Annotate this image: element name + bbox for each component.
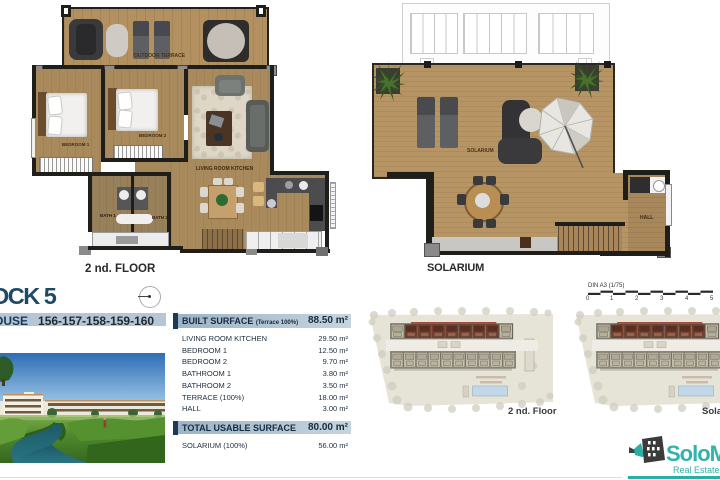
- svg-text:SoloM: SoloM: [666, 441, 720, 466]
- svg-text:Real Estate Ag: Real Estate Ag: [673, 465, 720, 475]
